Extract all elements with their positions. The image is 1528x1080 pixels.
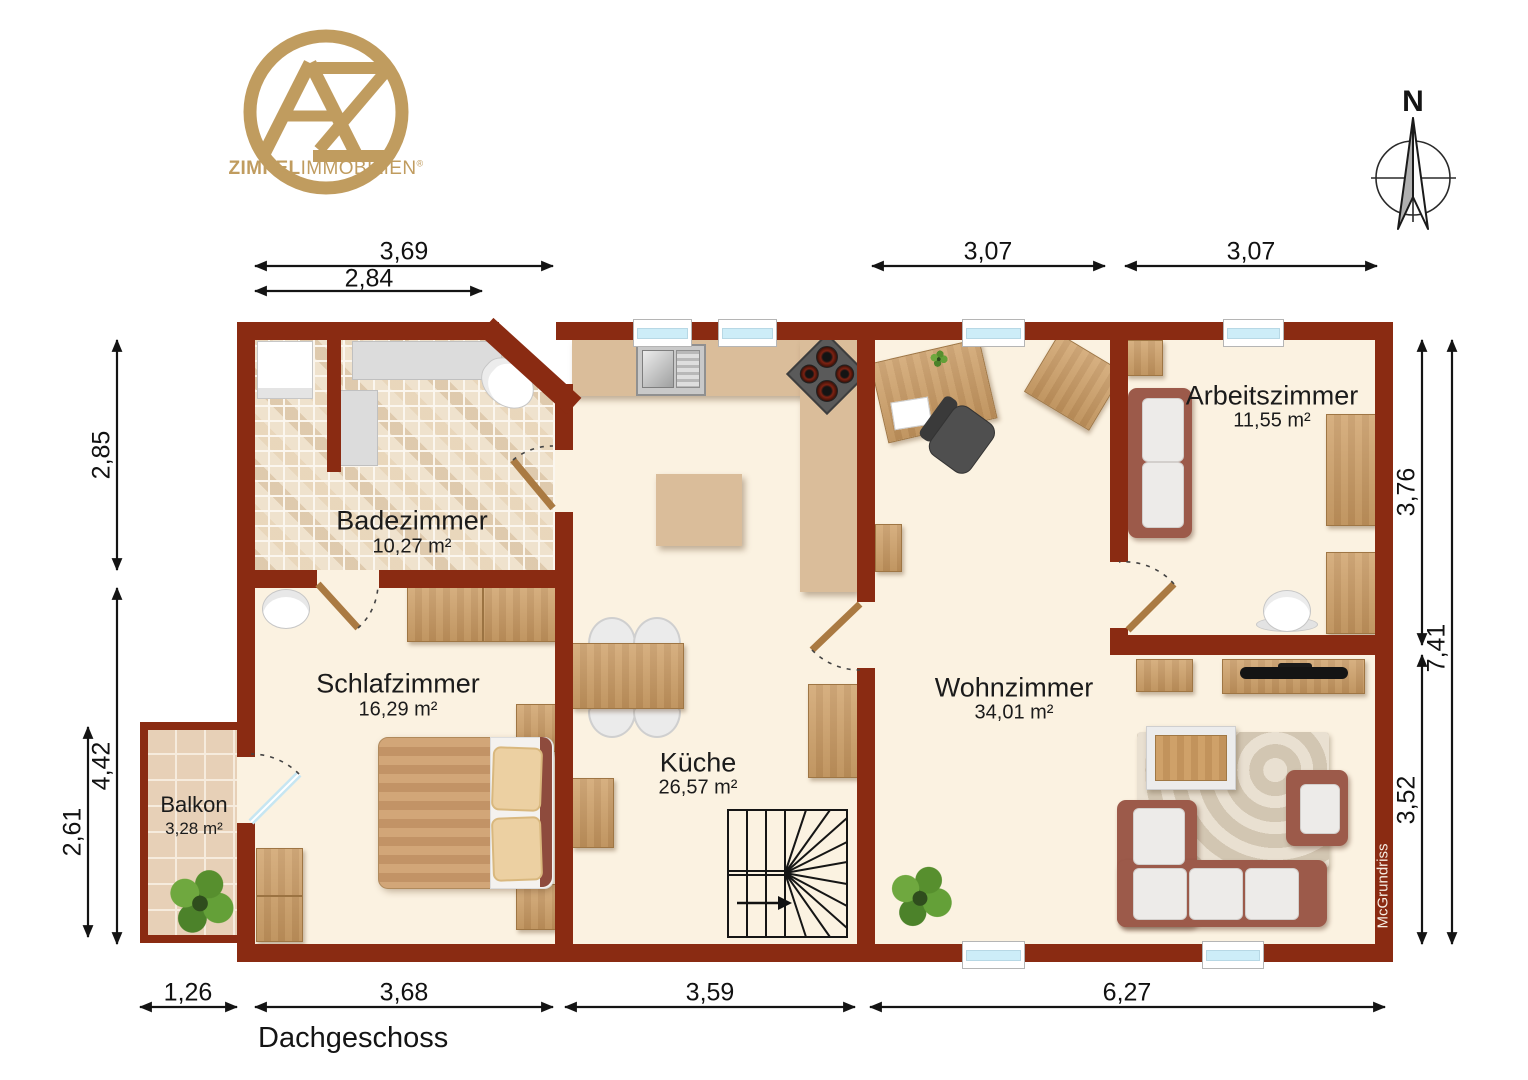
- room-label-balkon: Balkon: [160, 792, 227, 818]
- dim-left-lower: 4,42: [88, 742, 117, 791]
- dim-top-inner: 2,84: [345, 265, 394, 294]
- dim-balcony-width: 1,26: [164, 979, 213, 1008]
- room-area-schlafzimmer: 16,29 m²: [359, 699, 438, 722]
- room-label-schlafzimmer: Schlafzimmer: [316, 669, 480, 700]
- room-label-arbeitszimmer: Arbeitszimmer: [1186, 381, 1359, 412]
- compass-north-label: N: [1402, 85, 1424, 119]
- dim-right-lower: 3,52: [1393, 776, 1422, 825]
- room-area-kueche: 26,57 m²: [659, 777, 738, 800]
- floor-title: Dachgeschoss: [258, 1022, 448, 1055]
- dim-right-upper: 3,76: [1393, 468, 1422, 517]
- room-area-wohnzimmer: 34,01 m²: [975, 702, 1054, 725]
- room-area-arbeitszimmer: 11,55 m²: [1233, 410, 1310, 433]
- dim-top-outer: 3,69: [380, 238, 429, 267]
- compass-rose-icon: [1371, 118, 1456, 229]
- room-area-badezimmer: 10,27 m²: [373, 536, 452, 559]
- dim-right-total: 7,41: [1423, 624, 1452, 673]
- dim-top-right-b: 3,07: [1227, 238, 1276, 267]
- door-bath-kitchen: [513, 446, 553, 508]
- floorplan-canvas: ZIMPELIMMOBILIEN® N Badezimmer 10,27 m² …: [0, 0, 1528, 1080]
- registered-mark: ®: [416, 159, 423, 169]
- wall-bath-diagonal: [486, 326, 574, 406]
- watermark: McGrundriss: [1375, 843, 1392, 928]
- room-label-kueche: Küche: [660, 748, 737, 779]
- brand-name-light: IMMOBILIEN: [301, 158, 417, 179]
- door-bath-bedroom: [318, 584, 378, 628]
- dim-balcony-height: 2,61: [59, 808, 88, 857]
- brand-wordmark: ZIMPELIMMOBILIEN®: [228, 158, 423, 180]
- door-kitchen-living: [812, 604, 860, 670]
- brand-name-bold: ZIMPEL: [228, 158, 300, 179]
- dim-top-right-a: 3,07: [964, 238, 1013, 267]
- room-label-badezimmer: Badezimmer: [336, 506, 488, 537]
- dimension-lines: [88, 266, 1452, 1007]
- dim-bottom-kitchen: 3,59: [686, 979, 735, 1008]
- dim-left-upper: 2,85: [88, 431, 117, 480]
- door-living-study: [1119, 562, 1174, 630]
- door-balcony-glass: [251, 754, 299, 822]
- room-area-balkon: 3,28 m²: [165, 819, 223, 839]
- staircase: [728, 810, 847, 937]
- dim-bottom-living: 6,27: [1103, 979, 1152, 1008]
- room-label-wohnzimmer: Wohnzimmer: [935, 673, 1094, 704]
- dim-bottom-bedroom: 3,68: [380, 979, 429, 1008]
